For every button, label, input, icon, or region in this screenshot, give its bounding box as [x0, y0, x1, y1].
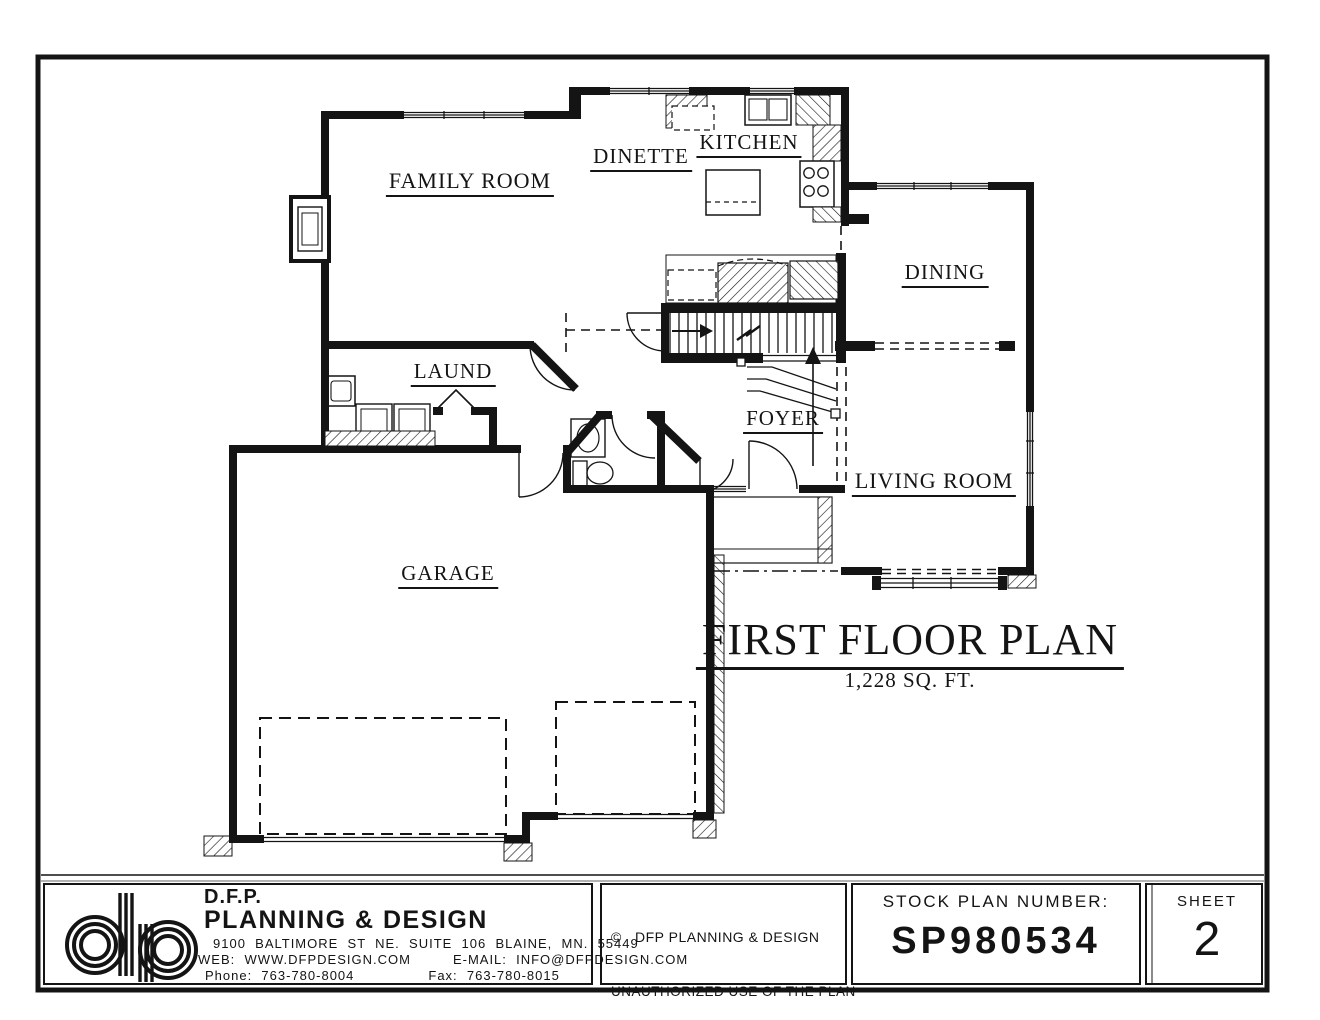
kitchen-fixtures: [666, 95, 841, 222]
room-label-family: FAMILY ROOM: [386, 168, 554, 197]
walls: [229, 87, 1034, 843]
room-label-foyer: FOYER: [743, 406, 823, 434]
doors: [437, 313, 797, 497]
company-logo: [67, 893, 196, 982]
room-label-living: LIVING ROOM: [852, 468, 1016, 497]
stairs: [670, 313, 840, 466]
windows: [264, 87, 1034, 842]
kitchen-stove: [800, 161, 834, 207]
company-address: 9100 BALTIMORE ST NE. SUITE 106 BLAINE, …: [213, 936, 639, 951]
toilet-bowl: [587, 462, 613, 484]
plan-title: FIRST FLOOR PLAN: [696, 614, 1124, 670]
company-name: PLANNING & DESIGN: [204, 906, 488, 935]
copyright-line-2: UNAUTHORIZED USE OF THE PLAN: [611, 984, 839, 1000]
toilet-tank: [573, 461, 587, 487]
company-fax: Fax: 763-780-8015: [428, 968, 559, 983]
pantry-shelving: [666, 255, 838, 303]
company-phone: Phone: 763-780-8004: [205, 968, 354, 983]
stock-plan-number: SP980534: [852, 920, 1140, 963]
stock-plan-label: STOCK PLAN NUMBER:: [852, 892, 1140, 912]
front-stoop: [712, 497, 838, 571]
room-label-dinette: DINETTE: [590, 144, 692, 172]
company-web: WEB: WWW.DFPDESIGN.COM: [198, 952, 411, 967]
sheet-label: SHEET: [1152, 893, 1262, 910]
fireplace: [291, 197, 329, 261]
plan-sheet: FAMILY ROOM DINETTE KITCHEN DINING LAUND…: [0, 0, 1320, 1020]
room-label-garage: GARAGE: [398, 561, 498, 589]
kitchen-island: [706, 170, 760, 215]
room-label-kitchen: KITCHEN: [696, 130, 801, 158]
plan-area: 1,228 SQ. FT.: [844, 668, 975, 693]
room-label-laundry: LAUND: [411, 359, 496, 387]
room-label-dining: DINING: [902, 260, 989, 288]
copyright-line-1: © DFP PLANNING & DESIGN: [611, 929, 839, 945]
sheet-number: 2: [1152, 912, 1262, 967]
